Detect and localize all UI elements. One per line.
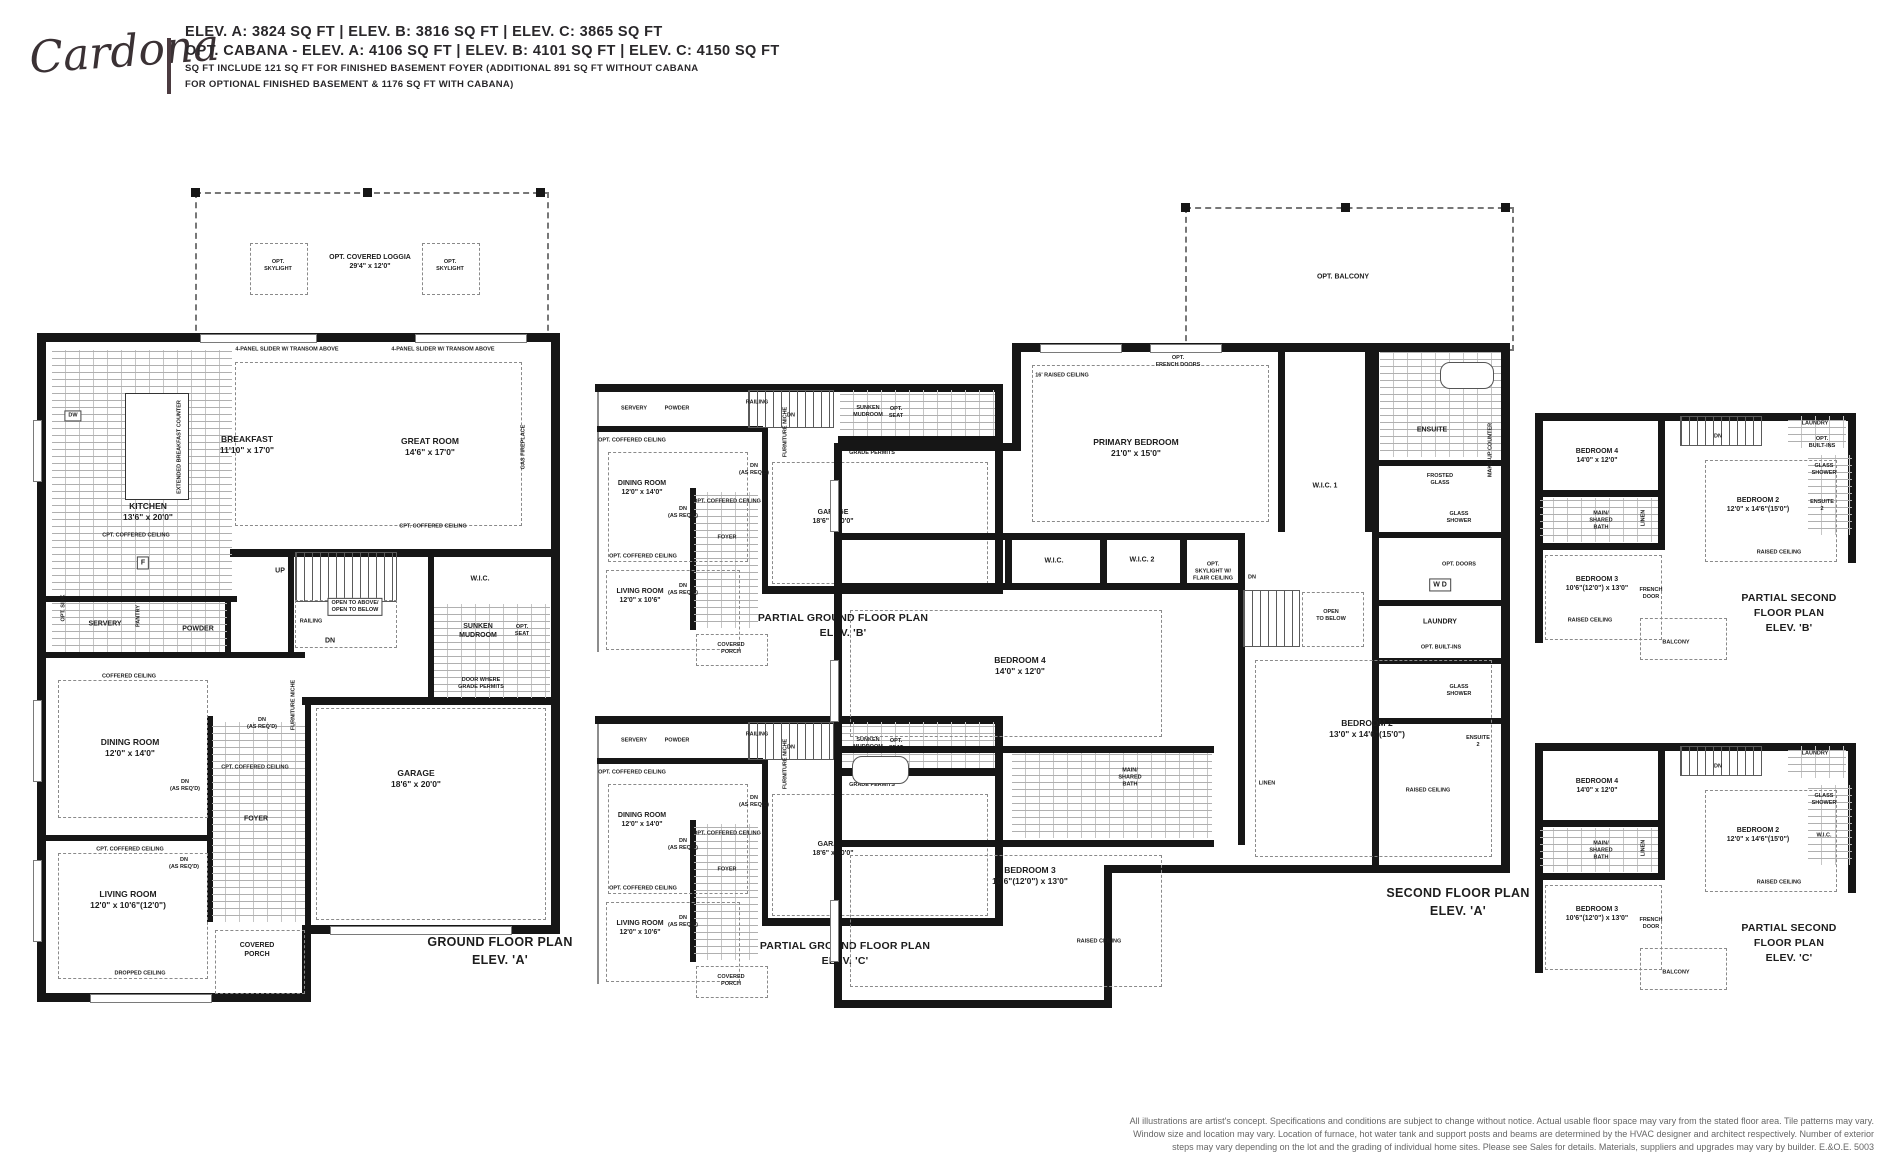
room-label-primary: PRIMARY BEDROOM 21'0" x 15'0" [1093, 437, 1178, 459]
room-label-kitchen: KITCHEN 13'6" x 20'0" [123, 501, 173, 523]
caption-partial-second-c: PARTIAL SECOND FLOOR PLAN ELEV. 'C' [1734, 921, 1845, 967]
room-label-living: LIVING ROOM 12'0" x 10'6" [616, 587, 663, 605]
wall [1104, 865, 1510, 873]
room-label-servery: SERVERY [621, 405, 647, 412]
wall [1180, 533, 1187, 590]
room-label-bedroom2: BEDROOM 2 12'0" x 14'6"(15'0") [1727, 826, 1789, 844]
label-slider: 4-PANEL SLIDER W/ TRANSOM ABOVE [235, 346, 338, 353]
room-label-shared-bath: MAIN/ SHARED BATH [1589, 840, 1612, 861]
model-name-script: Cardona [28, 23, 173, 103]
wall [1278, 352, 1285, 532]
balcony-post [1501, 203, 1510, 212]
slider-opening [415, 334, 527, 343]
wall [597, 426, 763, 432]
label-dn-reqd: DN (AS REQ'D) [170, 779, 200, 793]
label-glass-shower: GLASS SHOWER [1812, 463, 1837, 477]
label-dn-reqd: DN (AS REQ'D) [668, 506, 698, 520]
room-label-great-room: GREAT ROOM 14'6" x 17'0" [401, 436, 459, 458]
room-label-shared-bath: MAIN/ SHARED BATH [1118, 767, 1141, 788]
label-builtins: OPT. BUILT-INS [1809, 436, 1835, 450]
label-dn-reqd: DN (AS REQ'D) [668, 583, 698, 597]
room-label-ensuite2: ENSUITE 2 [1810, 499, 1834, 513]
room-label-linen: LINEN [1640, 840, 1647, 857]
label-dn: DN [1714, 763, 1722, 770]
label-glass-shower: GLASS SHOWER [1447, 511, 1472, 525]
label-dn: DN [1714, 433, 1722, 440]
label-opt-sink: OPT. SINK [60, 595, 67, 622]
disclaimer-line: steps may vary depending on the lot and … [1114, 1141, 1874, 1154]
window [1040, 344, 1122, 353]
header-note-line2: FOR OPTIONAL FINISHED BASEMENT & 1176 SQ… [185, 79, 514, 90]
disclaimer: All illustrations are artist's concept. … [1114, 1115, 1874, 1154]
wall [995, 384, 1003, 594]
label-coffered: OPT. COFFERED CEILING [598, 769, 666, 776]
wall [762, 428, 768, 594]
loggia-post [191, 188, 200, 197]
wall [288, 552, 294, 652]
window [830, 900, 839, 962]
label-raised-ceiling: RAISED CEILING [1757, 879, 1802, 886]
room-label-porch: COVERED PORCH [240, 941, 275, 959]
room-label-bedroom4: BEDROOM 4 14'0" x 12'0" [1576, 777, 1618, 795]
room-label-foyer: FOYER [718, 866, 737, 873]
label-opt-skylight: OPT. SKYLIGHT W/ FLAIR CEILING [1193, 561, 1233, 582]
room-label-servery: SERVERY [88, 619, 121, 628]
label-coffered: CPT. COFFERED CEILING [96, 846, 164, 853]
room-label-linen: LINEN [1259, 780, 1276, 787]
label-opt-doors: OPT. DOORS [1442, 561, 1476, 568]
window [830, 480, 839, 532]
disclaimer-line: Window size and location may vary. Locat… [1114, 1128, 1874, 1141]
room-label-dining: DINING ROOM 12'0" x 14'0" [618, 811, 666, 829]
label-coffered: OPT. COFFERED CEILING [693, 830, 761, 837]
label-skylight: OPT. SKYLIGHT [436, 259, 464, 273]
room-label-garage: GARAGE 18'6" x 20'0" [391, 768, 441, 790]
staircase [748, 390, 834, 428]
staircase [295, 552, 397, 602]
label-raised-ceiling: RAISED CEILING [1406, 787, 1451, 794]
bath-floor [1012, 753, 1212, 838]
label-coffered: CPT. COFFERED CEILING [221, 764, 289, 771]
label-opt-seat: OPT. SEAT [515, 624, 529, 638]
label-coffered: OPT. COFFERED CEILING [598, 437, 666, 444]
label-coffered: OPT. COFFERED CEILING [609, 553, 677, 560]
wall [1535, 873, 1665, 880]
label-builtins: OPT. BUILT-INS [1421, 644, 1461, 651]
wall [1658, 413, 1665, 550]
room-label-dining: DINING ROOM 12'0" x 14'0" [618, 479, 666, 497]
wall [1012, 343, 1021, 448]
header-divider [167, 38, 171, 94]
bathtub [1440, 362, 1494, 389]
staircase [1243, 590, 1300, 647]
label-dn-reqd: DN (AS REQ'D) [169, 857, 199, 871]
window [33, 420, 42, 482]
room-label-loggia: OPT. COVERED LOGGIA 29'4" x 12'0" [329, 253, 411, 271]
room-label-bedroom4: BEDROOM 4 14'0" x 12'0" [1576, 447, 1618, 465]
label-balcony: BALCONY [1662, 639, 1689, 646]
wall [551, 333, 560, 934]
wall [37, 835, 207, 841]
wall [597, 758, 763, 764]
room-label-servery: SERVERY [621, 737, 647, 744]
room-label-bedroom4: BEDROOM 4 14'0" x 12'0" [994, 655, 1045, 677]
room-label-wic: W.I.C. [1817, 832, 1832, 839]
label-dn: DN [1248, 574, 1256, 581]
label-dn-reqd: DN (AS REQ'D) [739, 463, 769, 477]
room-label-dining: DINING ROOM 12'0" x 14'0" [101, 737, 160, 759]
bathtub [852, 756, 909, 784]
label-dn-reqd: DN (AS REQ'D) [668, 838, 698, 852]
wall [305, 697, 311, 933]
room-label-shared-bath: MAIN/ SHARED BATH [1589, 510, 1612, 531]
window [1150, 344, 1222, 353]
label-balcony: OPT. BALCONY [1317, 272, 1369, 281]
porch-outline [215, 930, 305, 994]
label-raised-ceiling: RAISED CEILING [1568, 617, 1613, 624]
label-dishwasher: DW [64, 410, 81, 421]
label-washer-dryer: W D [1429, 578, 1451, 591]
label-railing: RAILING [746, 399, 769, 406]
room-label-ensuite2: ENSUITE 2 [1466, 735, 1490, 749]
label-dn-reqd: DN (AS REQ'D) [739, 795, 769, 809]
wall [1365, 352, 1372, 532]
label-extended-counter: EXTENDED BREAKFAST COUNTER [176, 400, 183, 494]
label-dn-reqd: DN (AS REQ'D) [668, 915, 698, 929]
room-label-bedroom2: BEDROOM 2 12'0" x 14'6"(15'0") [1727, 496, 1789, 514]
staircase [1680, 416, 1762, 446]
room-label-living: LIVING ROOM 12'0" x 10'6"(12'0") [90, 889, 166, 911]
room-label-powder: POWDER [665, 405, 690, 412]
wall [1238, 533, 1245, 845]
label-balcony: BALCONY [1662, 969, 1689, 976]
room-label-bedroom3: BEDROOM 3 10'6"(12'0") x 13'0" [1566, 575, 1628, 593]
room-label-bedroom3: BEDROOM 3 10'6"(12'0") x 13'0" [1566, 905, 1628, 923]
room-label-powder: POWDER [665, 737, 690, 744]
room-label-foyer: FOYER [718, 534, 737, 541]
room-label-living: LIVING ROOM 12'0" x 10'6" [616, 919, 663, 937]
room-label-laundry: LAUNDRY [1423, 617, 1457, 626]
room-label-pantry: PANTRY [135, 605, 142, 627]
ceiling-outline [58, 853, 208, 979]
room-label-bedroom2: BEDROOM 2 13'0" x 14'6"(15'0") [1329, 718, 1405, 740]
room-label-laundry: LAUNDRY [1802, 750, 1829, 757]
label-opt-seat: OPT. SEAT [889, 406, 903, 420]
slider-opening [200, 334, 317, 343]
loggia-post [363, 188, 372, 197]
label-skylight: OPT. SKYLIGHT [264, 259, 292, 273]
header-cabana-line: OPT. CABANA - ELEV. A: 4106 SQ FT | ELEV… [185, 43, 780, 59]
staircase [748, 722, 834, 760]
wall [834, 840, 1214, 847]
balcony-post [1181, 203, 1190, 212]
wall [1005, 533, 1012, 590]
garage-outline [772, 462, 988, 584]
room-label-mudroom: SUNKEN MUDROOM [459, 622, 497, 640]
room-label-porch: COVERED PORCH [717, 974, 744, 988]
label-furniture-niche: FURNITURE NICHE [290, 680, 297, 730]
room-label-laundry: LAUNDRY [1802, 420, 1829, 427]
wall [1535, 490, 1665, 497]
window [830, 660, 839, 722]
room-label-wic2: W.I.C. 2 [1130, 555, 1155, 564]
wall [1501, 343, 1510, 873]
room-label-mudroom: SUNKEN MUDROOM [853, 405, 883, 419]
caption-second-floor-a: SECOND FLOOR PLAN ELEV. 'A' [1386, 884, 1529, 920]
window [33, 700, 42, 782]
wall [834, 443, 1021, 451]
wall [37, 652, 305, 658]
room-label-linen: LINEN [1640, 510, 1647, 527]
label-dn: DN [325, 636, 335, 645]
caption-partial-second-b: PARTIAL SECOND FLOOR PLAN ELEV. 'B' [1734, 591, 1845, 637]
wall [1535, 820, 1665, 827]
wall [1535, 543, 1665, 550]
label-coffered: OPT. COFFERED CEILING [609, 885, 677, 892]
label-coffered: OPT. COFFERED CEILING [693, 498, 761, 505]
caption-ground-floor-a: GROUND FLOOR PLAN ELEV. 'A' [427, 933, 572, 969]
balcony-post [1341, 203, 1350, 212]
label-open-below: OPEN TO BELOW [1316, 609, 1346, 623]
wall [1658, 743, 1665, 880]
label-coffered: CPT. COFFERED CEILING [102, 532, 170, 539]
label-glass-shower: GLASS SHOWER [1447, 684, 1472, 698]
label-glass-shower: GLASS SHOWER [1812, 793, 1837, 807]
header-note-line1: SQ FT INCLUDE 121 SQ FT FOR FINISHED BAS… [185, 63, 698, 74]
label-gas-fireplace: GAS FIREPLACE [520, 425, 527, 470]
room-label-foyer: FOYER [244, 814, 268, 823]
label-frosted-glass: FROSTED GLASS [1427, 473, 1453, 487]
wall [1100, 533, 1107, 590]
wall [834, 1000, 1112, 1008]
room-label-breakfast: BREAKFAST 11'10" x 17'0" [220, 434, 274, 456]
ceiling-outline [235, 362, 522, 526]
label-raised-ceiling: 16' RAISED CEILING [1035, 372, 1089, 379]
floor-plan-sheet: Cardona ELEV. A: 3824 SQ FT | ELEV. B: 3… [0, 0, 1900, 1176]
label-slider: 4-PANEL SLIDER W/ TRANSOM ABOVE [391, 346, 494, 353]
room-label-powder: POWDER [182, 624, 214, 633]
wall [1372, 600, 1510, 606]
header-elevations-line: ELEV. A: 3824 SQ FT | ELEV. B: 3816 SQ F… [185, 24, 663, 40]
label-dn: DN [787, 412, 795, 419]
label-railing: RAILING [746, 731, 769, 738]
wall [1372, 532, 1510, 538]
room-label-ensuite: ENSUITE [1417, 425, 1447, 434]
label-raised-ceiling: RAISED CEILING [1757, 549, 1802, 556]
room-label-wic: W.I.C. [470, 574, 489, 583]
room-label-bedroom3: BEDROOM 3 10'6"(12'0") x 13'0" [992, 865, 1068, 887]
room-label-wic1: W.I.C. 1 [1313, 481, 1338, 490]
label-makeup-counter: MAKE-UP COUNTER [1487, 423, 1494, 477]
label-french-door: FRENCH DOOR [1640, 587, 1663, 601]
label-french-doors: OPT. FRENCH DOORS [1156, 355, 1201, 369]
label-dn-reqd: DN (AS REQ'D) [247, 717, 277, 731]
label-railing: RAILING [300, 618, 323, 625]
label-dropped-ceiling: DROPPED CEILING [114, 970, 165, 977]
room-label-wic: W.I.C. [1044, 556, 1063, 565]
label-dn: DN [787, 744, 795, 751]
label-coffered: CPT. COFFERED CEILING [399, 523, 467, 530]
wall [762, 760, 768, 926]
label-raised-ceiling: RAISED CEILING [1077, 938, 1122, 945]
room-label-porch: COVERED PORCH [717, 642, 744, 656]
label-door-grade: DOOR WHERE GRADE PERMITS [458, 677, 504, 691]
label-french-door: FRENCH DOOR [1640, 917, 1663, 931]
label-up: UP [275, 566, 285, 575]
disclaimer-line: All illustrations are artist's concept. … [1114, 1115, 1874, 1128]
wall [834, 746, 1214, 753]
staircase [1680, 746, 1762, 776]
label-open-to-above: OPEN TO ABOVE/ OPEN TO BELOW [327, 598, 382, 616]
label-coffered: COFFERED CEILING [102, 673, 156, 680]
garage-outline [316, 708, 546, 920]
window [33, 860, 42, 942]
label-fridge: F [137, 556, 149, 569]
window [90, 994, 212, 1003]
loggia-post [536, 188, 545, 197]
